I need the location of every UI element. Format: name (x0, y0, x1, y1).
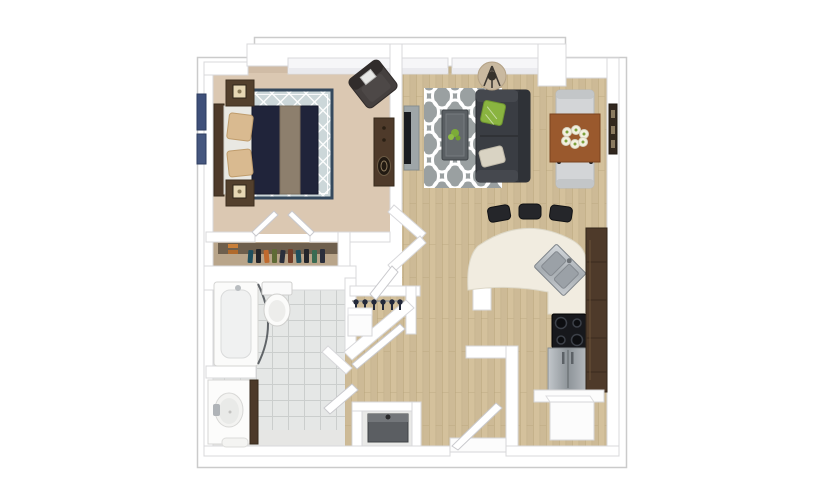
tub-faucet (235, 285, 241, 291)
top-corner-column (538, 44, 566, 86)
unit-valve (386, 415, 391, 420)
utility-closet-right-wall (412, 402, 421, 446)
bottom-wall-right (506, 446, 619, 456)
floor-plan-canvas (0, 0, 825, 500)
toilet (262, 282, 292, 326)
vanity-sink (208, 380, 258, 444)
dining-table (550, 114, 600, 162)
sofa-arm-bottom (476, 170, 518, 182)
floor-lamp (478, 62, 506, 90)
bed-headboard (214, 104, 224, 196)
closet-drawer-unit (348, 308, 372, 336)
refrigerator (548, 348, 588, 390)
sofa-arm-top (476, 90, 518, 102)
utility-closet-top-wall (352, 402, 420, 411)
storage-unit (550, 402, 594, 440)
bedroom-closet-wall-left (206, 232, 255, 242)
nightstand-top (226, 80, 254, 106)
bar-stool-2 (519, 204, 541, 219)
tub-vanity-divider-wall (206, 366, 256, 378)
cooktop (552, 314, 586, 348)
tv-console (404, 106, 419, 170)
nightstand-bottom (226, 180, 254, 206)
coffee-table (442, 110, 468, 160)
sofa (476, 90, 530, 182)
bath-mat (222, 438, 248, 447)
bar-stool-1 (487, 204, 511, 223)
green-accent-pillow (480, 100, 506, 126)
top-left-step-wall (204, 62, 248, 75)
bed-runner (280, 106, 300, 194)
dining-chair-bottom (556, 160, 594, 188)
bathtub (214, 282, 258, 366)
bed-pillow-bottom (227, 149, 254, 177)
kitchen-entry-wall-vertical (506, 346, 518, 446)
kitchen-bar-end-stub-wall (473, 288, 491, 310)
bed-pillow-top (227, 113, 254, 142)
bar-stool-3 (549, 205, 573, 223)
floor-plan (0, 0, 825, 500)
leaning-wall-art (197, 94, 206, 164)
sofa-back (518, 90, 530, 182)
storage-unit-top-face (546, 396, 594, 402)
dresser (374, 118, 394, 186)
entry-closet (546, 396, 594, 440)
vanity-faucet (213, 404, 220, 416)
tv (404, 112, 411, 164)
dining-wall-art (609, 104, 617, 154)
utility-closet-contents (368, 414, 408, 442)
